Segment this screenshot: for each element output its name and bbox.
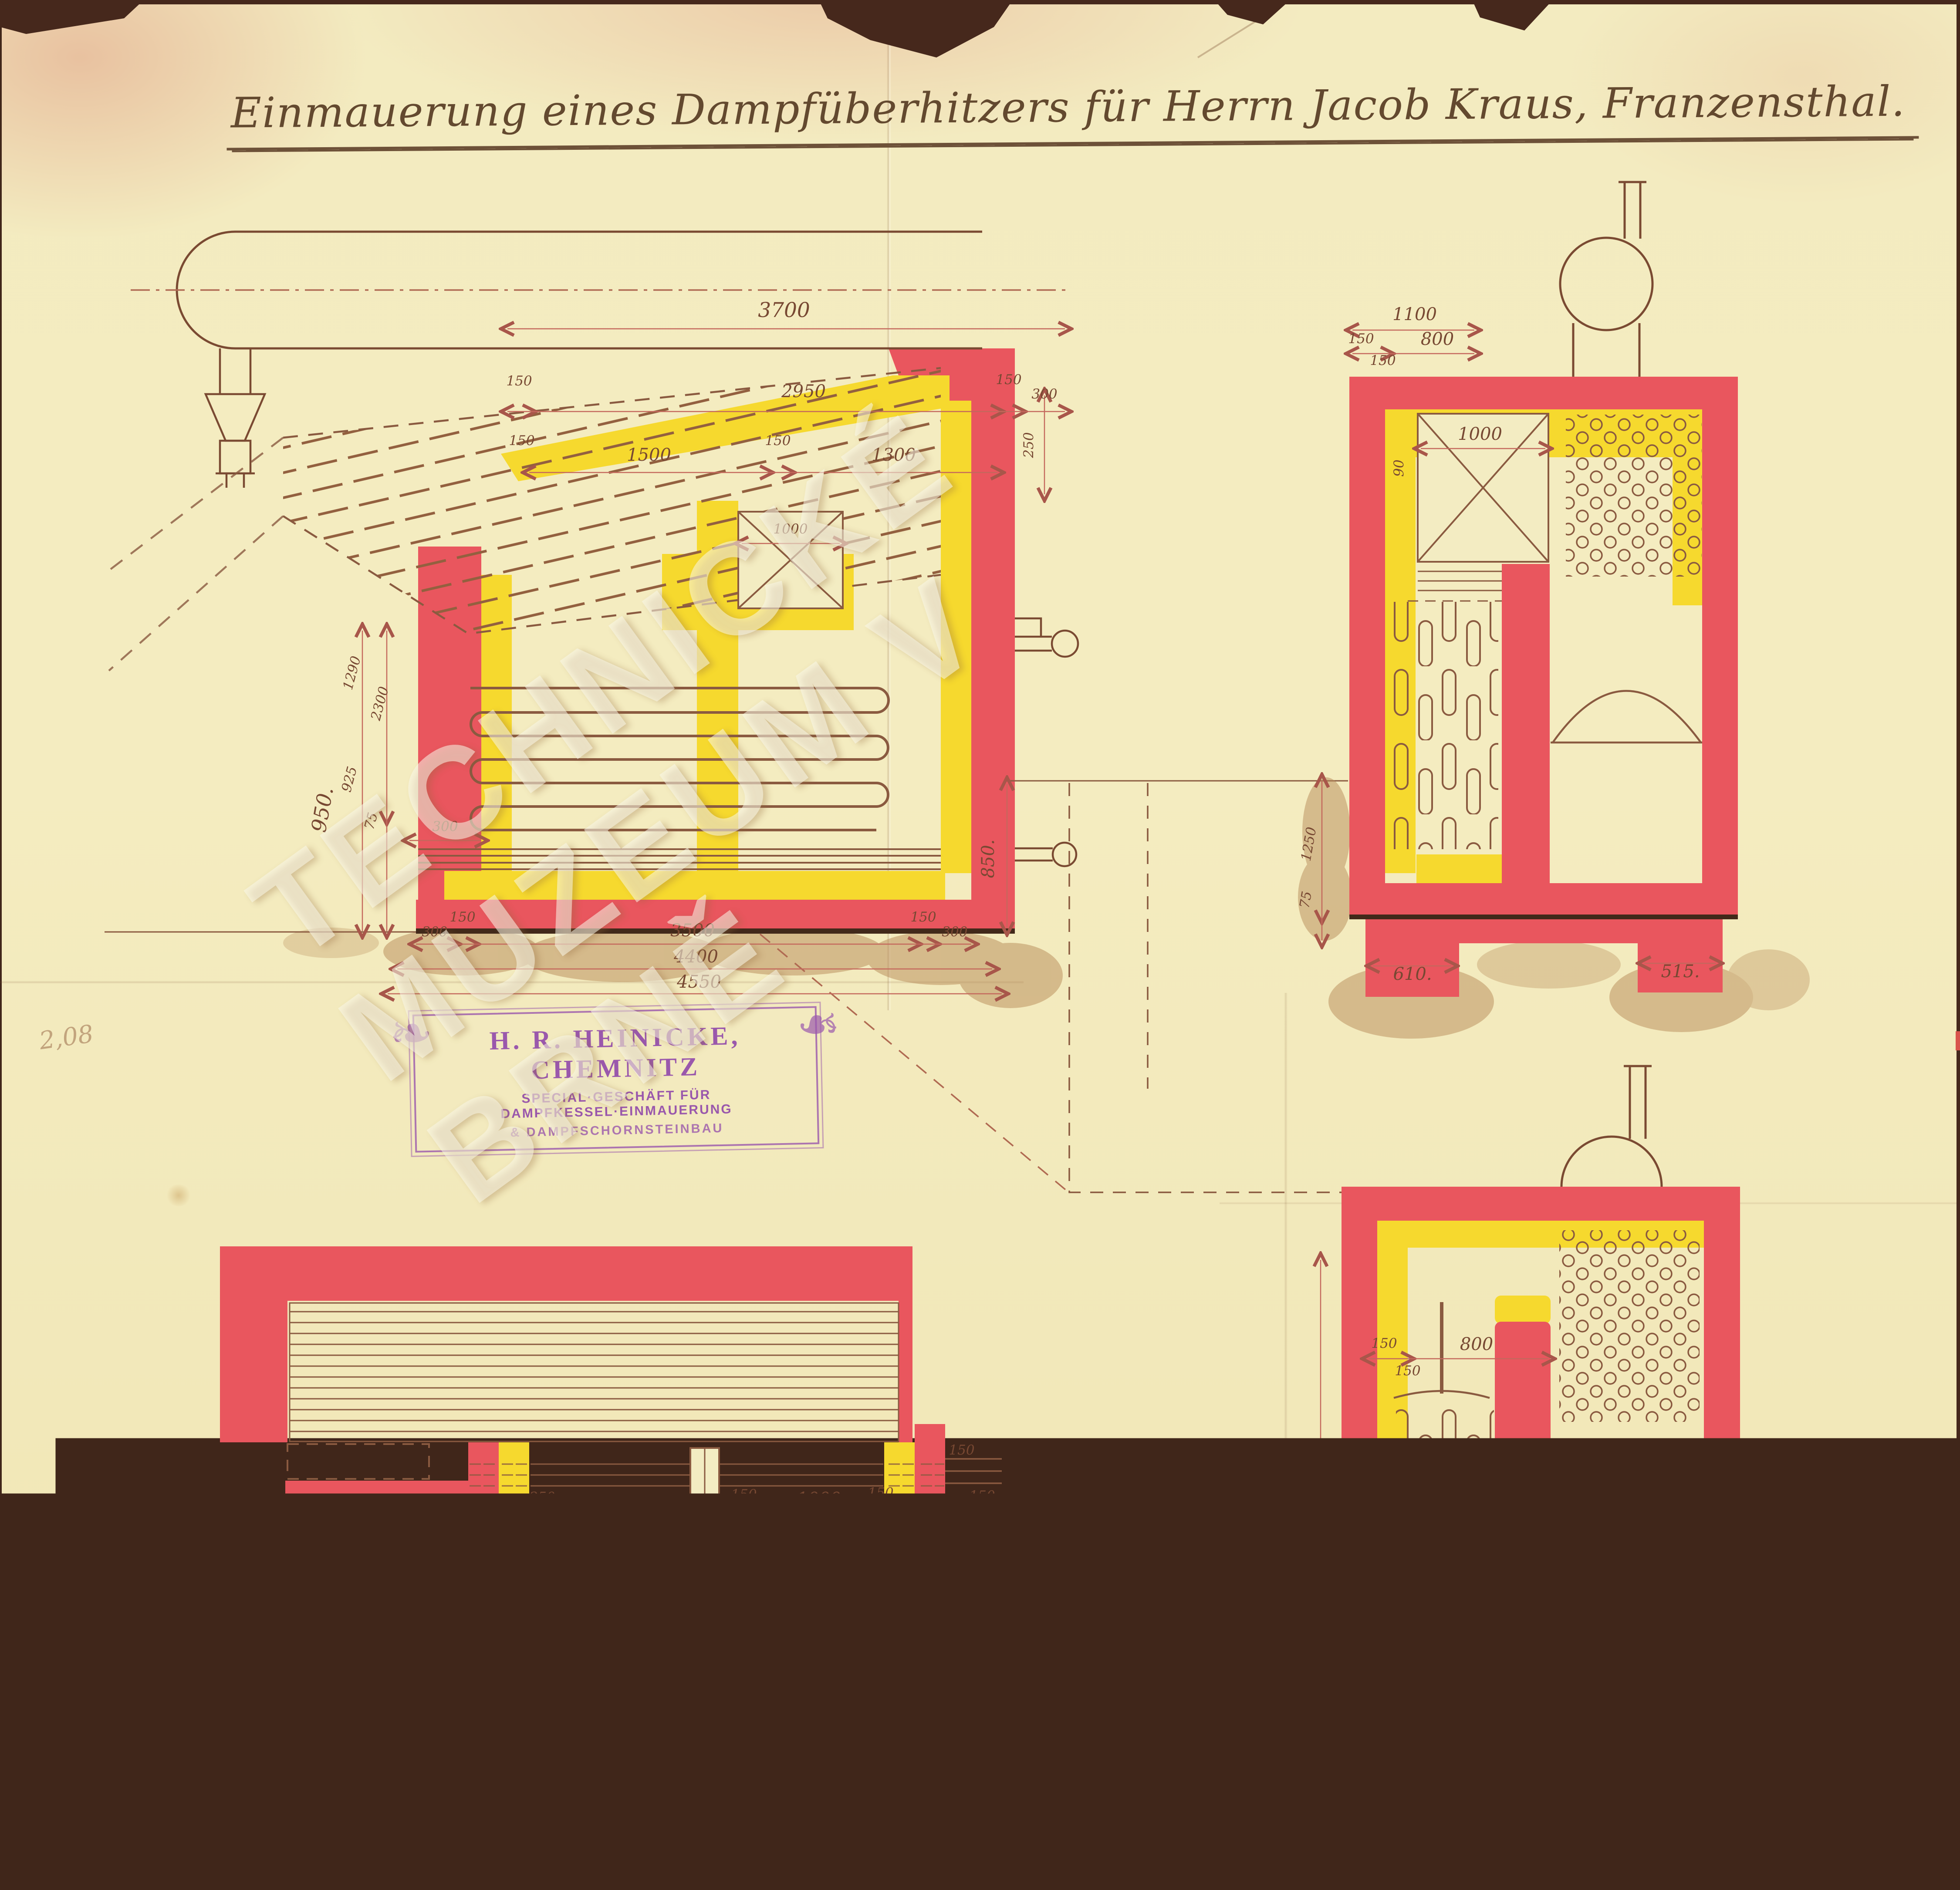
dim-label: 1300 [872, 445, 916, 465]
stamp-company-name: H. R. HEINICKE, CHEMNITZ [432, 1019, 799, 1087]
dim-label: 150 [1371, 1336, 1397, 1351]
stamp-scroll-ornament-left: ❧ [389, 1003, 433, 1064]
dim-label: 300 [1031, 386, 1057, 402]
dim-label: 4400 [673, 947, 718, 967]
scale-tick-label: 1 [1373, 1768, 1382, 1784]
dim-label: 75 [1292, 1630, 1311, 1650]
view-front-section: 1100 150 800 150 1000 90 1250 75 610. 51… [1297, 182, 1810, 1039]
company-stamp: ❧ ❧ H. R. HEINICKE, CHEMNITZ SPECIAL·GES… [412, 1006, 819, 1152]
stamp-business-line: SPECIAL·GESCHÄFT FÜR DAMPFKESSEL·EINMAUE… [433, 1086, 800, 1123]
tube-dashed-left [470, 1461, 531, 1559]
scale-tick-label: 4 m. [1723, 1768, 1753, 1784]
dim-label: 90 [1391, 459, 1407, 476]
dim-label: 150 [515, 1713, 541, 1729]
dim-label: 1000 [1458, 424, 1502, 444]
dim-label: 300 [432, 819, 458, 834]
dim-label: 75 [1297, 890, 1315, 910]
dim-label: 150 [868, 1485, 893, 1501]
dim-label: 250 [1021, 432, 1037, 458]
scale-tick-label: 3 [1605, 1768, 1614, 1784]
dim-label: 1100 [1392, 304, 1437, 324]
dim-label: 2300 [368, 685, 392, 723]
dim-label: 1500 [627, 445, 671, 465]
dim-label: 150 [901, 1645, 926, 1660]
technical-drawing: 3700 150 2950 150 300 150 1500 150 1300 … [0, 0, 1960, 1890]
dim-label: 610. [1393, 964, 1432, 984]
dim-label: 4400 [710, 1756, 763, 1780]
superheater-elements-rear [1396, 1409, 1494, 1627]
scale-tick-label: 2 [1489, 1768, 1498, 1784]
superheater-coil [470, 688, 889, 830]
dim-label: 150 [731, 1487, 757, 1502]
boiler-tube-grid [1566, 415, 1702, 577]
scale-tick-label: 0 [1260, 1768, 1269, 1784]
dim-label: 3700 [758, 298, 810, 322]
dim-label: 800 [362, 1552, 382, 1580]
dim-label: 800 [1460, 1334, 1493, 1354]
dim-label: 1300 [801, 1648, 845, 1668]
dim-label: 150 [449, 909, 475, 925]
dim-label: 925 [338, 765, 360, 793]
downcomer [206, 348, 265, 488]
scanned-drawing-sheet: 3700 150 2950 150 300 150 1500 150 1300 … [0, 0, 1960, 1890]
dim-label: 75 [362, 811, 381, 831]
view-rear-section: 150 150 800 2300 75 [1290, 1066, 1790, 1796]
dim-label: 1000 [797, 1489, 841, 1509]
dim-label: 150 [996, 372, 1021, 388]
dim-label: 2950 [781, 381, 826, 402]
steam-dome-rear [1561, 1066, 1662, 1187]
dim-label: 3700 [698, 1717, 750, 1741]
dim-label: 150 [357, 1619, 377, 1647]
scale-caption: Maßstab 1:30. [1342, 1827, 1596, 1873]
boiler-tubes-plan [290, 1303, 899, 1441]
dim-label: 150 [509, 433, 534, 449]
dim-label: 2950 [685, 1684, 730, 1704]
dim-label: 1000 [774, 521, 808, 537]
dim-label: 50 [696, 1499, 713, 1515]
dim-label: 3500 [670, 921, 715, 941]
dim-label: 800 [1421, 329, 1454, 349]
dim-label: 4550 [676, 972, 721, 992]
dim-label: 150 [506, 373, 532, 389]
dim-label: 515. [1661, 962, 1700, 982]
dim-label: 150 [1395, 1363, 1420, 1379]
dim-label: 300 [422, 924, 447, 940]
dim-label: 150 [500, 1663, 520, 1691]
dim-label: 150 [378, 1635, 398, 1663]
dim-label: 850. [978, 839, 998, 878]
boiler-tube-grid-rear [1559, 1230, 1700, 1422]
tube-dashed-right [883, 1461, 944, 1559]
dim-label: 150 [765, 433, 791, 449]
dim-label: 2300 [1290, 1491, 1317, 1539]
drawing-title: Einmauerung eines Dampfüberhitzers für H… [226, 77, 1919, 150]
inventory-number: 979 [1777, 1682, 1866, 1747]
dim-label: 150 [1348, 331, 1374, 347]
stamp-business-line2: & DAMPFSCHORNSTEINBAU [434, 1120, 800, 1142]
dim-label: 150 [910, 909, 936, 925]
dim-label: 950. [307, 785, 338, 834]
red-edge-mark [1956, 1031, 1960, 1050]
dim-label: 150 [1370, 353, 1396, 368]
dim-label: 1500 [602, 1648, 646, 1668]
dim-label: 1000 [606, 1491, 650, 1511]
dim-label: 150 [969, 1488, 995, 1504]
stamp-scroll-ornament-right: ❧ [796, 994, 841, 1056]
dim-label: 150 [710, 1642, 736, 1657]
steam-dome [1560, 182, 1652, 377]
scale-tick-label: 1,0 [1136, 1768, 1158, 1784]
dim-label: 300 [942, 924, 967, 940]
dim-label: 1100 [333, 1570, 354, 1607]
dim-label: 1290 [340, 655, 364, 692]
superheater-elements [1386, 602, 1498, 849]
dim-label: 150 [949, 1442, 974, 1458]
dim-label: 250 [529, 1489, 555, 1505]
dim-label: 300 [929, 1652, 954, 1668]
view-plan: 250 1000 50 150 1000 150 150 150 1100 80… [220, 1246, 1017, 1783]
